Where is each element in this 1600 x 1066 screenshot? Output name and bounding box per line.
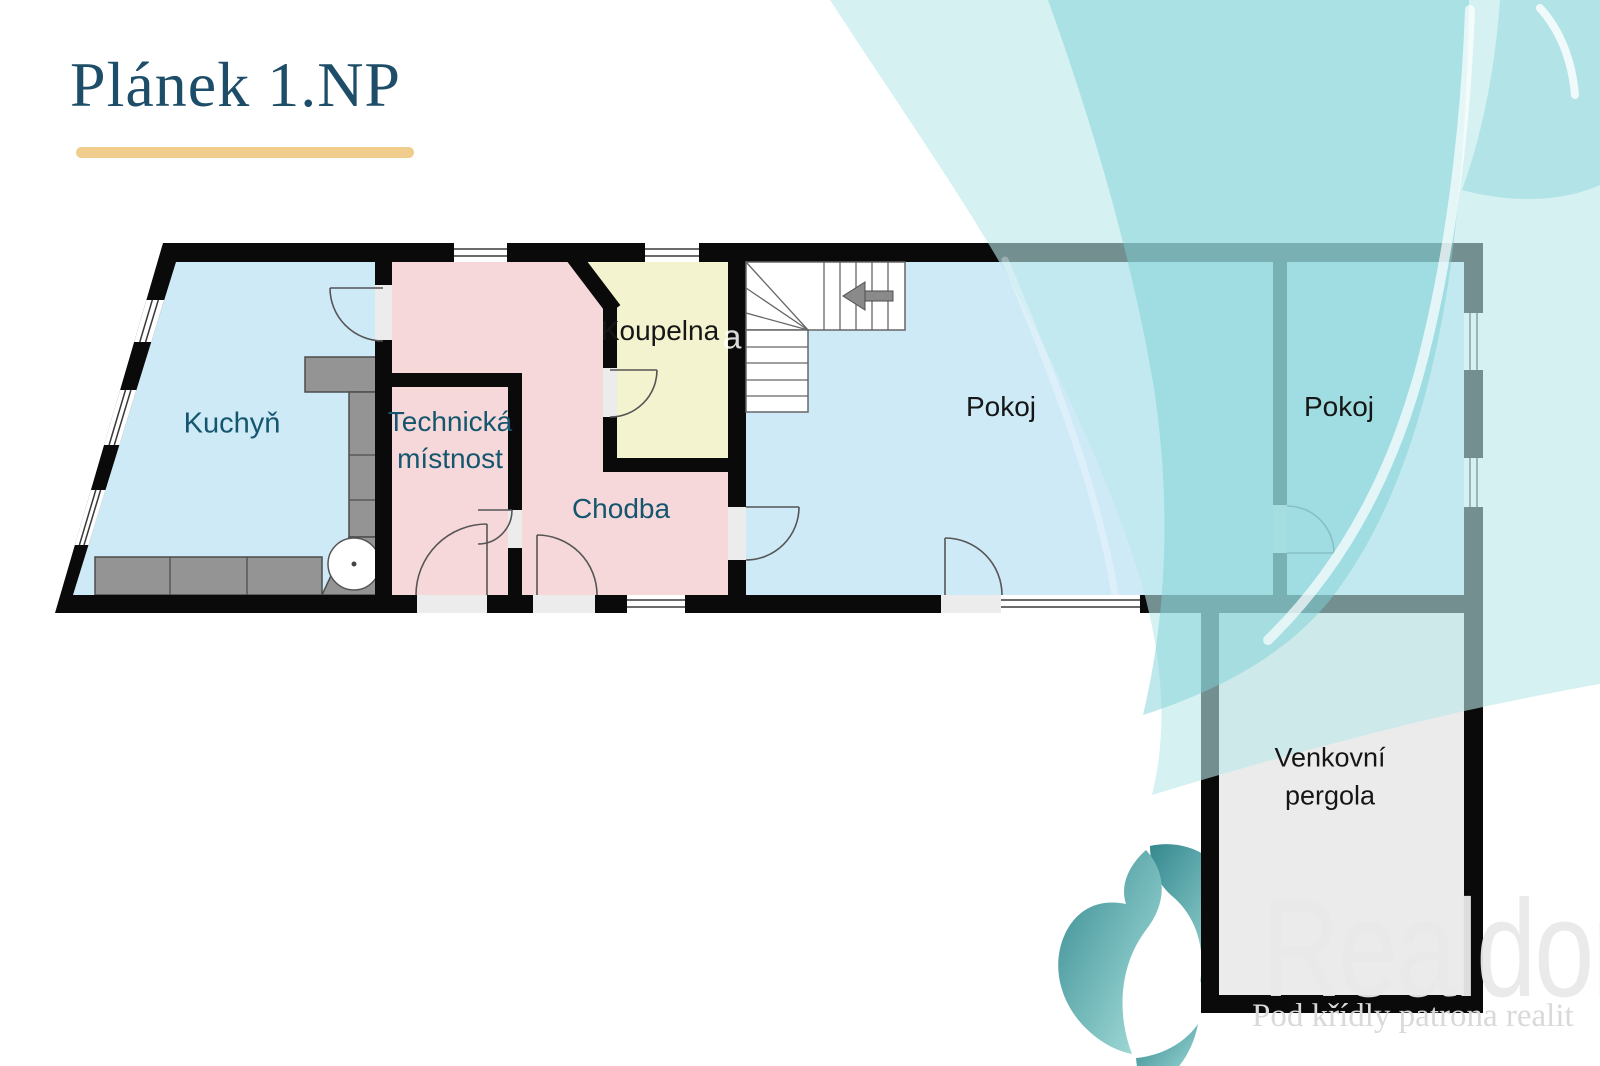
label-chodba: Chodba xyxy=(572,493,670,525)
window-room1-bottom xyxy=(1001,595,1140,613)
label-pergola-2: pergola xyxy=(1285,781,1375,812)
window-hall-bottom xyxy=(627,595,685,613)
tech-top-wall xyxy=(375,373,522,387)
floorplan-page: Plánek 1.NP Kuchyň Technická místnost Ko… xyxy=(0,0,1600,1066)
label-technicka-2: místnost xyxy=(397,443,503,475)
brand-tagline: Pod křídly patrona realit xyxy=(1252,998,1574,1035)
label-koupelna: Koupelna xyxy=(601,315,719,347)
window-room2-right-2 xyxy=(1464,458,1483,507)
title-underline-bar xyxy=(76,147,414,158)
label-pokoj-2: Pokoj xyxy=(1304,391,1374,423)
bathroom-bottom-wall xyxy=(603,458,746,472)
window-top-2 xyxy=(645,243,699,262)
window-top-1 xyxy=(454,243,507,262)
label-technicka-1: Technická xyxy=(388,406,513,438)
page-title: Plánek 1.NP xyxy=(70,48,401,122)
label-kuchyn: Kuchyň xyxy=(184,408,281,441)
label-pergola-1: Venkovní xyxy=(1274,743,1385,774)
watermark-stray-letter: a xyxy=(723,319,742,358)
room2-floor xyxy=(1280,262,1464,595)
window-room2-right-1 xyxy=(1464,313,1483,370)
label-pokoj-1: Pokoj xyxy=(966,391,1036,423)
